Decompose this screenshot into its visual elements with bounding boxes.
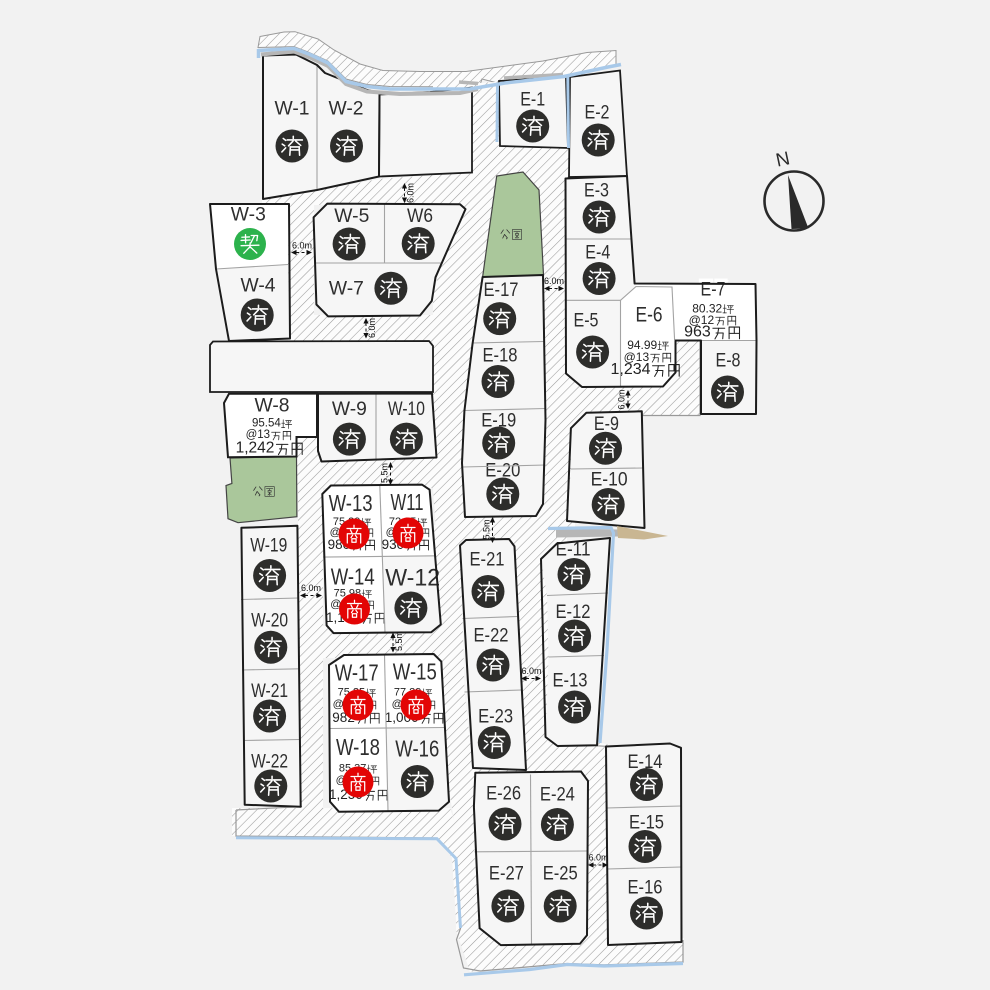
- svg-text:E-8: E-8: [716, 351, 741, 372]
- svg-text:6.0m: 6.0m: [617, 389, 627, 409]
- svg-text:E-1: E-1: [520, 90, 545, 111]
- svg-text:E-7: E-7: [701, 280, 726, 301]
- svg-text:W-20: W-20: [251, 611, 288, 632]
- svg-text:W-5: W-5: [334, 206, 369, 227]
- svg-text:W-3: W-3: [231, 205, 266, 226]
- svg-text:E-25: E-25: [543, 864, 578, 885]
- svg-text:W-21: W-21: [251, 681, 288, 702]
- svg-text:E-17: E-17: [484, 280, 519, 301]
- svg-text:6.0m: 6.0m: [292, 241, 312, 251]
- svg-text:W6: W6: [407, 206, 433, 227]
- svg-text:6.0m: 6.0m: [544, 276, 564, 286]
- svg-text:W-4: W-4: [241, 276, 276, 297]
- svg-text:W-16: W-16: [395, 735, 439, 761]
- svg-text:E-2: E-2: [585, 103, 610, 124]
- svg-text:W-9: W-9: [332, 399, 367, 420]
- svg-text:W-15: W-15: [393, 658, 437, 684]
- svg-text:95.54: 95.54: [252, 418, 281, 430]
- svg-text:W-7: W-7: [329, 279, 364, 300]
- svg-text:6.0m: 6.0m: [367, 318, 377, 338]
- svg-text:5.5m: 5.5m: [380, 463, 390, 483]
- svg-text:6.0m: 6.0m: [406, 183, 416, 203]
- svg-text:E-3: E-3: [584, 181, 609, 202]
- svg-text:W-8: W-8: [255, 396, 290, 417]
- svg-text:W-2: W-2: [329, 99, 364, 120]
- svg-text:W-10: W-10: [388, 399, 425, 420]
- svg-text:W-19: W-19: [250, 536, 287, 557]
- svg-text:1,234: 1,234: [611, 361, 651, 378]
- svg-text:1,242: 1,242: [236, 440, 275, 457]
- svg-text:E-16: E-16: [628, 878, 663, 899]
- svg-text:E-21: E-21: [470, 550, 505, 571]
- svg-text:963: 963: [684, 324, 711, 341]
- svg-text:W-12: W-12: [385, 565, 440, 592]
- svg-text:E-27: E-27: [489, 864, 524, 885]
- svg-text:6.0m: 6.0m: [301, 583, 321, 593]
- svg-text:E-18: E-18: [483, 346, 518, 367]
- svg-text:E-10: E-10: [591, 470, 628, 491]
- svg-text:W-17: W-17: [335, 660, 379, 686]
- svg-text:E-22: E-22: [474, 626, 509, 647]
- svg-text:E-23: E-23: [478, 707, 513, 728]
- svg-text:E-24: E-24: [540, 784, 575, 805]
- svg-text:E-13: E-13: [553, 671, 588, 692]
- svg-text:E-4: E-4: [585, 243, 610, 264]
- svg-text:6.0m: 6.0m: [588, 853, 608, 863]
- svg-text:W-14: W-14: [331, 564, 375, 590]
- svg-text:E-26: E-26: [486, 784, 521, 805]
- svg-text:6.0m: 6.0m: [521, 666, 541, 676]
- svg-text:5.5m: 5.5m: [482, 519, 492, 539]
- svg-text:5.5m: 5.5m: [394, 631, 404, 651]
- svg-text:W-13: W-13: [329, 490, 373, 516]
- svg-text:W-22: W-22: [251, 752, 288, 773]
- svg-text:E-6: E-6: [636, 304, 663, 327]
- svg-text:E-5: E-5: [574, 311, 599, 332]
- svg-text:W-1: W-1: [275, 99, 310, 120]
- svg-text:W11: W11: [391, 489, 424, 515]
- svg-text:W-18: W-18: [336, 734, 380, 760]
